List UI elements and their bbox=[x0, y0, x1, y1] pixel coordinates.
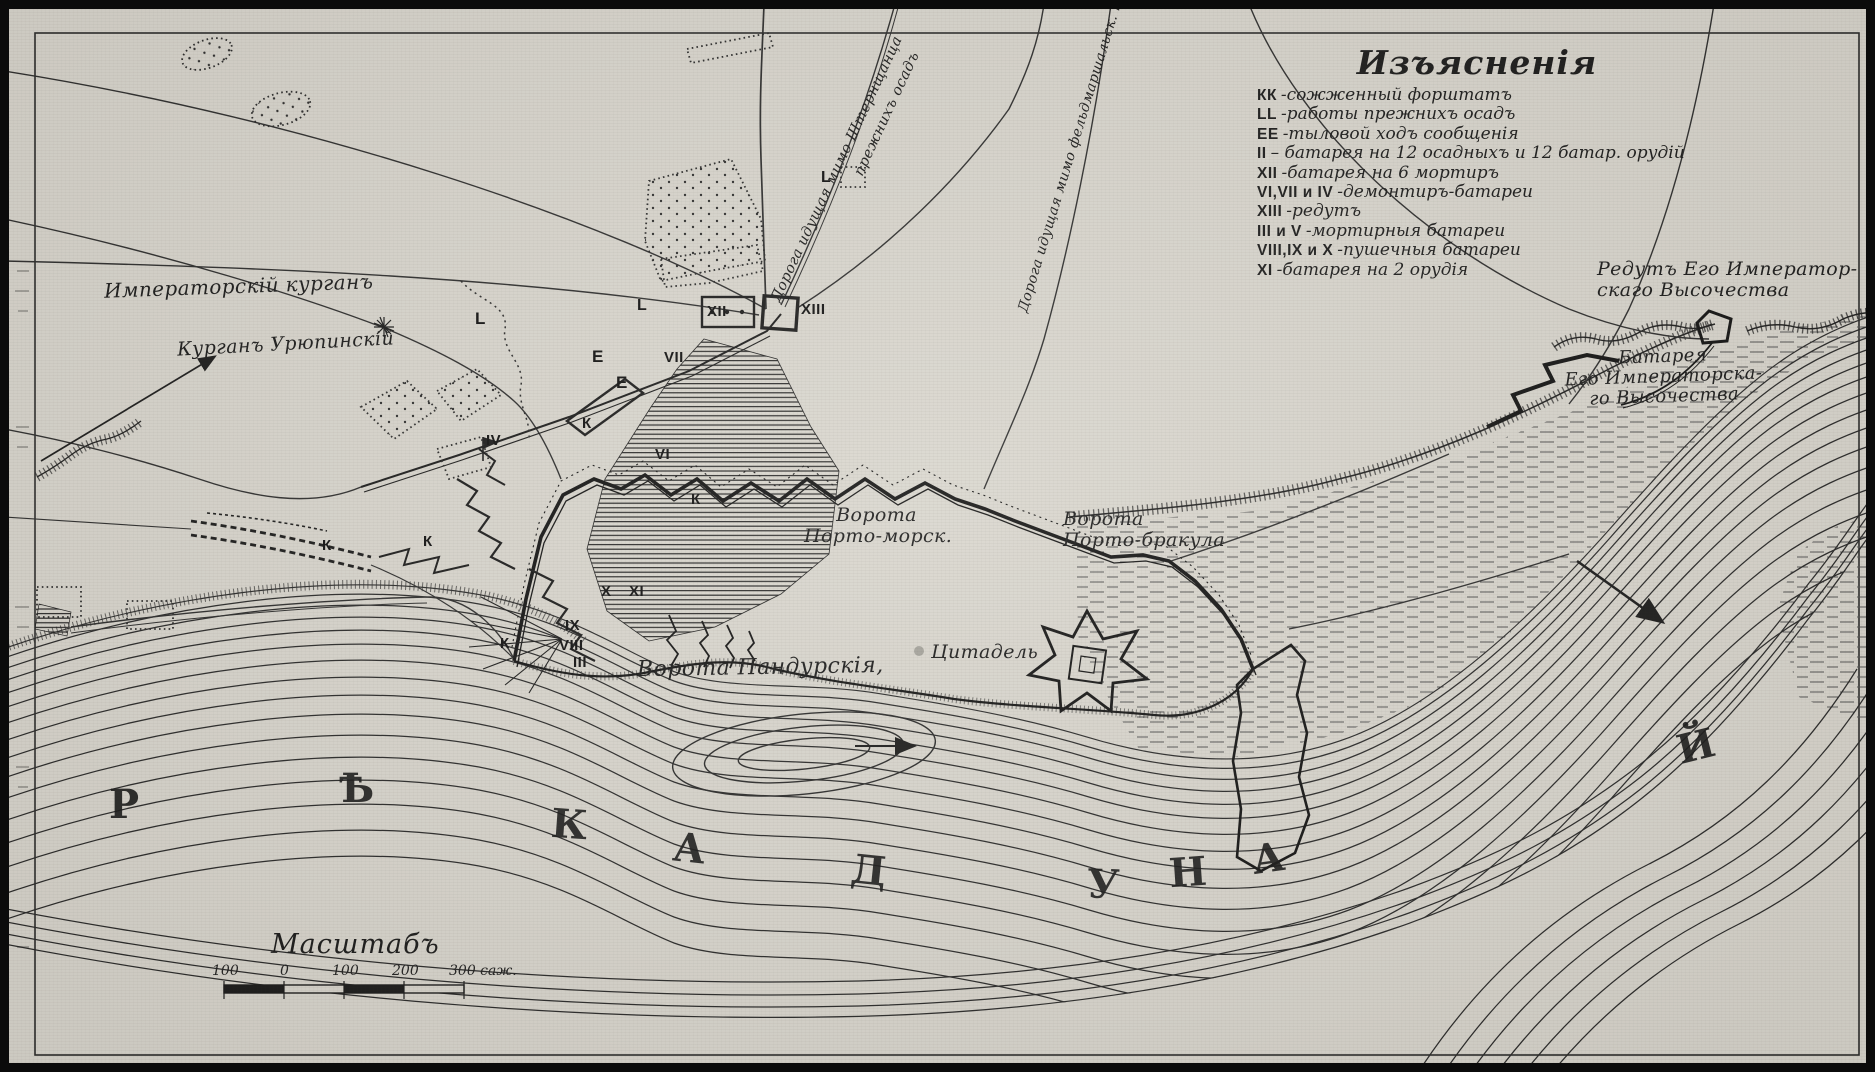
marker-vii: VII bbox=[664, 349, 684, 366]
scale-tick-100l: 100 bbox=[212, 963, 239, 979]
marker-iv: IV bbox=[486, 432, 501, 449]
legend-key: LL bbox=[1257, 106, 1277, 124]
gate-porto-brakula-line2: Порто-бракула bbox=[1063, 530, 1225, 551]
legend-row: ЕЕ-тыловой ходъ сообщенія bbox=[1257, 125, 1697, 144]
marker-xi: XI bbox=[629, 583, 644, 600]
marker-xii: XII bbox=[707, 303, 727, 320]
imperial-redoubt-line1: Редутъ Его Император- bbox=[1597, 259, 1858, 280]
legend-label: -мортирныя батареи bbox=[1306, 222, 1505, 241]
legend-row: XII-батарея на 6 мортиръ bbox=[1257, 164, 1697, 183]
label-gate-porto-brakula: Ворота Порто-бракула bbox=[1063, 509, 1225, 551]
label-gate-pandur: Ворота Пандурскія, bbox=[637, 653, 884, 682]
legend-key: КК bbox=[1257, 87, 1277, 105]
river-branch bbox=[1409, 669, 1875, 1072]
label-gate-porto-morsk: Ворота Порто-морск. bbox=[804, 505, 949, 547]
label-citadel: Цитадель bbox=[931, 641, 1038, 663]
marker-x: X bbox=[601, 583, 612, 600]
marker-k-south: К bbox=[500, 635, 510, 652]
river-letter-a2: А bbox=[1249, 833, 1288, 884]
legend-label: -пушечныя батареи bbox=[1337, 241, 1521, 260]
marker-iii: III bbox=[573, 654, 587, 671]
scale-tick-200: 200 bbox=[392, 963, 419, 979]
legend-label: -редутъ bbox=[1286, 202, 1361, 221]
legend-title: Изъясненія bbox=[1257, 43, 1697, 82]
scale-tick-300: 300 саж. bbox=[449, 963, 517, 979]
legend-label: -батарея на 2 орудія bbox=[1277, 261, 1469, 280]
legend-label: – батарея на 12 осадныхъ и 12 батар. ору… bbox=[1271, 144, 1685, 163]
legend-key: XI bbox=[1257, 262, 1273, 280]
legend-label: -работы прежнихъ осадъ bbox=[1281, 105, 1515, 124]
river-letter-u: У bbox=[1086, 860, 1120, 908]
legend: Изъясненія КК-сожженный форштатъ LL-рабо… bbox=[1257, 43, 1697, 280]
siege-map-page: Изъясненія КК-сожженный форштатъ LL-рабо… bbox=[0, 0, 1875, 1072]
legend-row: КК-сожженный форштатъ bbox=[1257, 86, 1697, 105]
print-bleed-marks bbox=[15, 271, 29, 947]
marker-k-wall: К bbox=[691, 491, 701, 508]
marker-l-top: L bbox=[821, 169, 831, 187]
marker-k-hatch: К bbox=[582, 415, 592, 432]
river-letter-d: Д bbox=[849, 845, 889, 895]
legend-row: LL-работы прежнихъ осадъ bbox=[1257, 105, 1697, 124]
legend-label: -батарея на 6 мортиръ bbox=[1281, 164, 1499, 183]
river-letter-k: К bbox=[549, 800, 589, 849]
legend-key: III и V bbox=[1257, 223, 1302, 241]
marker-e-upper: E bbox=[592, 347, 604, 367]
legend-key: VI,VII и IV bbox=[1257, 184, 1333, 202]
legend-row: XIII-редутъ bbox=[1257, 202, 1697, 221]
marker-vi: VI bbox=[655, 446, 670, 463]
legend-label: -сожженный форштатъ bbox=[1281, 86, 1512, 105]
imperial-redoubt-line2: скаго Высочества bbox=[1597, 280, 1858, 301]
label-imperial-redoubt: Редутъ Его Император- скаго Высочества bbox=[1597, 259, 1858, 301]
marker-l-mid: L bbox=[637, 297, 647, 315]
label-imperial-battery: Батарея Его Императорска- го Высочества bbox=[1560, 343, 1767, 410]
gate-porto-morsk-line1: Ворота bbox=[804, 505, 949, 526]
legend-key: VIII,IX и X bbox=[1257, 242, 1333, 260]
legend-key: XIII bbox=[1257, 203, 1282, 221]
river-letter-r: Р bbox=[109, 781, 139, 828]
legend-row: VI,VII и IV-демонтиръ-батареи bbox=[1257, 183, 1697, 202]
legend-key: XII bbox=[1257, 165, 1277, 183]
river-letter-yat: Ѣ bbox=[339, 765, 374, 812]
scale-tick-0: 0 bbox=[280, 963, 289, 979]
legend-row: II– батарея на 12 осадныхъ и 12 батар. о… bbox=[1257, 144, 1697, 163]
river-letter-a1: А bbox=[671, 823, 708, 873]
legend-label: -демонтиръ-батареи bbox=[1337, 183, 1533, 202]
marker-e-lower: E bbox=[616, 373, 628, 393]
gate-porto-morsk-line2: Порто-морск. bbox=[804, 526, 949, 547]
legend-label: -тыловой ходъ сообщенія bbox=[1283, 125, 1519, 144]
river-letter-n: Н bbox=[1167, 848, 1208, 898]
scale-tick-100r: 100 bbox=[332, 963, 359, 979]
scale-bar bbox=[224, 981, 464, 999]
marker-l-west: L bbox=[475, 309, 486, 329]
gate-porto-brakula-line1: Ворота bbox=[1063, 509, 1225, 530]
river-island bbox=[669, 700, 940, 807]
legend-key: ЕЕ bbox=[1257, 126, 1279, 144]
marker-viii: VIII bbox=[559, 637, 584, 654]
legend-row: III и V-мортирныя батареи bbox=[1257, 222, 1697, 241]
scale-title: Масштабъ bbox=[271, 929, 440, 960]
shore-hatched-blob bbox=[35, 604, 71, 636]
marker-ix: IX bbox=[565, 617, 580, 634]
marker-k-field: К bbox=[423, 533, 433, 550]
legend-key: II bbox=[1257, 145, 1267, 163]
marker-k-parallel: К bbox=[322, 537, 332, 554]
marker-xiii: XIII bbox=[801, 301, 826, 318]
